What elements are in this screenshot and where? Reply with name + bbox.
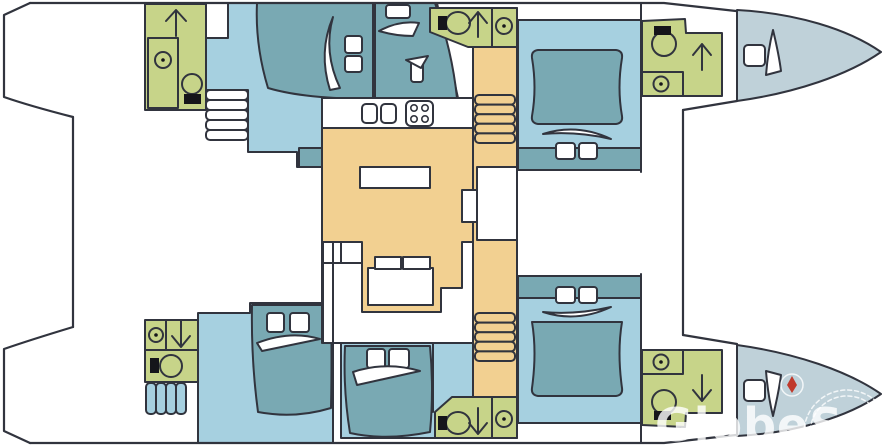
shower-port-forward-dot <box>659 82 663 86</box>
bed-starboard-forward-pillow-1 <box>556 287 575 303</box>
stairs-port-aft-step-4 <box>206 120 248 130</box>
companionway-port-steps-step-4 <box>475 124 515 134</box>
deck-line-port-forward <box>683 101 737 110</box>
catamaran-deck-plan: GlobeSailor <box>0 0 890 446</box>
salon-coffee-table <box>368 268 433 305</box>
bed-port-aft-pillow-2 <box>345 56 362 72</box>
companionway-port-steps-step-3 <box>475 114 515 124</box>
hull-port-stern-outline <box>4 3 73 117</box>
stairs-starboard-aft-step-2 <box>156 383 166 414</box>
toilet-starboard-mid-tank <box>438 416 447 430</box>
stove-burner-4 <box>422 116 428 122</box>
toilet-port-forward-bowl-icon <box>652 32 676 56</box>
toilet-starboard-aft-tank <box>150 358 159 373</box>
bed-port-aft-pillow-1 <box>345 36 362 53</box>
stairs-starboard-aft-step-3 <box>166 383 176 414</box>
toilet-port-aft-tank <box>184 94 201 104</box>
shower-starboard-forward-dot <box>659 360 663 364</box>
toilet-starboard-aft-bowl-icon <box>160 355 182 377</box>
stairs-port-aft-step-3 <box>206 110 248 120</box>
watermark-text: GlobeSailor <box>655 398 890 446</box>
bed-starboard-aft-pillow-1 <box>267 313 284 332</box>
companionway-port-steps-step-5 <box>475 133 515 143</box>
bed-starboard-aft-pillow-2 <box>290 313 309 332</box>
nav-station-seat <box>462 190 477 222</box>
bed-port-mid-pillow <box>386 5 410 18</box>
stairs-port-aft-step-2 <box>206 100 248 110</box>
galley-sink-left-icon <box>362 104 377 123</box>
stairs-starboard-aft-step-4 <box>176 383 186 414</box>
shower-starboard-mid-dot <box>502 417 506 421</box>
bow-port-berth-pillow <box>744 45 765 66</box>
hull-starboard-stern-outline <box>4 327 73 443</box>
bed-starboard-forward <box>532 322 622 396</box>
bed-starboard-mid-pillow-2 <box>389 349 409 368</box>
companionway-port-steps-step-2 <box>475 105 515 115</box>
stairs-port-aft <box>206 90 248 140</box>
stairs-starboard-aft <box>146 383 186 414</box>
stove-burner-2 <box>422 105 428 111</box>
bed-starboard-forward-pillow-2 <box>579 287 597 303</box>
companionway-port-steps <box>475 95 515 143</box>
stove-burner-1 <box>411 105 417 111</box>
stairs-port-aft-step-1 <box>206 90 248 100</box>
toilet-port-mid-bowl-icon <box>446 12 470 34</box>
galley-counter <box>322 98 473 128</box>
companionway-starboard-steps-step-3 <box>475 332 515 342</box>
deck-line-starboard-forward <box>683 335 737 344</box>
cabin-port-aft-dresser <box>299 148 322 167</box>
bed-port-forward-pillow-2 <box>579 143 597 159</box>
companionway-port-steps-step-1 <box>475 95 515 105</box>
salon-sofa-cushion-1 <box>375 257 401 269</box>
toilet-port-aft-bowl-icon <box>182 74 202 94</box>
companionway-starboard-steps-step-5 <box>475 351 515 361</box>
shower-port-mid-dot <box>502 24 506 28</box>
toilet-starboard-mid-bowl-icon <box>446 412 470 434</box>
companionway-starboard-steps <box>475 313 515 361</box>
shower-port-aft-dot <box>161 58 165 62</box>
stove-burner-3 <box>411 116 417 122</box>
companionway-starboard-steps-step-2 <box>475 323 515 333</box>
bed-port-forward <box>532 50 622 124</box>
bed-starboard-mid-pillow-1 <box>367 349 385 368</box>
companionway-starboard-steps-step-4 <box>475 342 515 352</box>
companionway-starboard-steps-step-1 <box>475 313 515 323</box>
stairs-starboard-aft-step-1 <box>146 383 156 414</box>
toilet-port-forward-tank <box>654 26 671 35</box>
bed-port-forward-pillow-1 <box>556 143 575 159</box>
nav-station-desk <box>477 167 517 240</box>
salon-dining-table <box>360 167 430 188</box>
stairs-port-aft-step-5 <box>206 130 248 140</box>
toilet-port-mid-tank <box>438 16 447 30</box>
galley-stove-icon <box>406 101 433 126</box>
galley-sink-right-icon <box>381 104 396 123</box>
shower-starboard-aft-dot <box>154 333 158 337</box>
deck-plan-svg: GlobeSailor <box>0 0 890 446</box>
salon-sofa-cushion-2 <box>403 257 430 269</box>
